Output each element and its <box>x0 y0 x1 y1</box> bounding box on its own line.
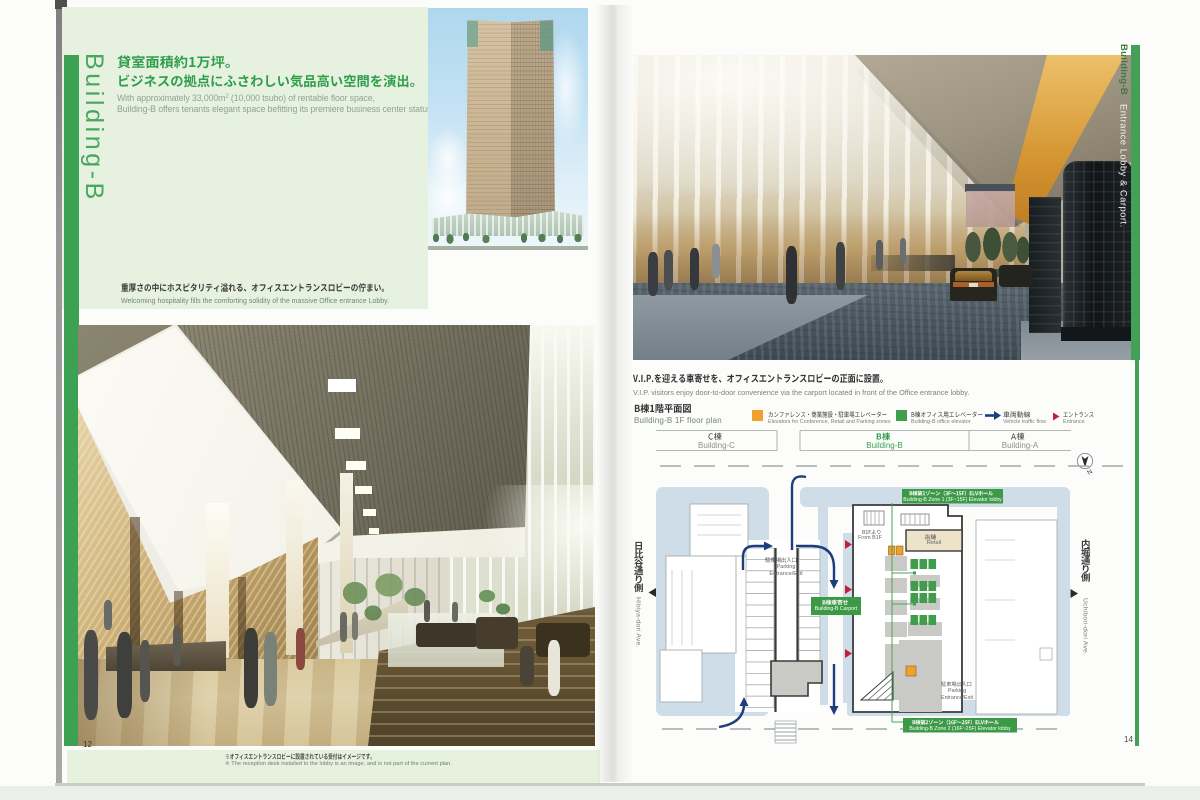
svg-text:N: N <box>1086 468 1094 477</box>
